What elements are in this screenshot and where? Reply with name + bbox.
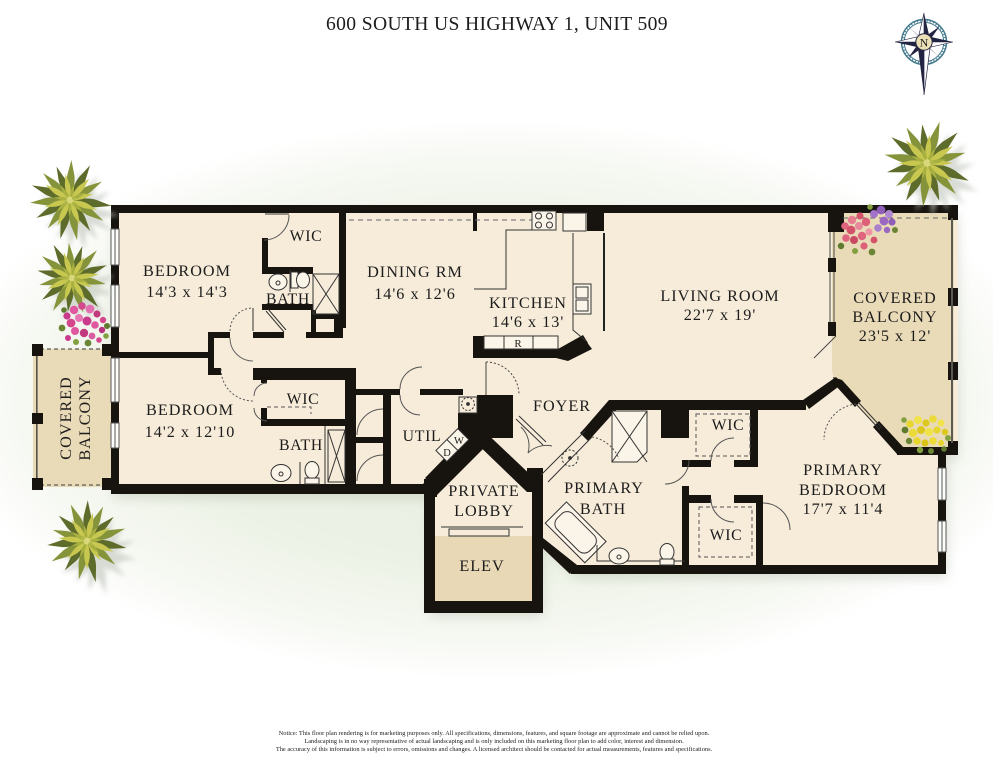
svg-text:22'7 x 19': 22'7 x 19' <box>684 306 757 324</box>
svg-text:PRIMARY: PRIMARY <box>564 479 644 497</box>
svg-text:D: D <box>443 448 451 459</box>
svg-text:DINING RM: DINING RM <box>367 263 463 281</box>
svg-text:R: R <box>514 338 522 350</box>
svg-text:BATH: BATH <box>580 500 626 518</box>
svg-text:LIVING ROOM: LIVING ROOM <box>660 287 779 305</box>
svg-text:COVERED: COVERED <box>853 289 936 307</box>
svg-text:W: W <box>454 436 464 447</box>
svg-text:COVERED: COVERED <box>57 376 75 459</box>
svg-text:PRIMARY: PRIMARY <box>803 461 883 479</box>
svg-text:LOBBY: LOBBY <box>454 502 514 520</box>
svg-text:The accuracy of this informati: The accuracy of this information is subj… <box>276 746 713 753</box>
svg-text:WIC: WIC <box>712 417 745 434</box>
svg-text:600 SOUTH US HIGHWAY 1, UNIT 5: 600 SOUTH US HIGHWAY 1, UNIT 509 <box>326 14 668 35</box>
svg-text:14'6 x 13': 14'6 x 13' <box>492 313 565 331</box>
svg-text:14'3 x 14'3: 14'3 x 14'3 <box>146 283 228 301</box>
svg-text:BALCONY: BALCONY <box>76 375 94 460</box>
svg-text:KITCHEN: KITCHEN <box>489 294 567 312</box>
svg-text:BATH: BATH <box>279 437 323 454</box>
svg-text:23'5 x 12': 23'5 x 12' <box>859 327 932 345</box>
svg-text:17'7 x 11'4: 17'7 x 11'4 <box>803 500 884 518</box>
svg-text:WIC: WIC <box>290 228 323 245</box>
svg-text:WIC: WIC <box>710 527 743 544</box>
svg-text:BEDROOM: BEDROOM <box>146 401 234 419</box>
svg-text:BEDROOM: BEDROOM <box>143 262 231 280</box>
svg-text:PRIVATE: PRIVATE <box>448 482 519 500</box>
svg-text:WIC: WIC <box>287 391 320 408</box>
svg-text:BEDROOM: BEDROOM <box>799 481 887 499</box>
svg-text:UTIL: UTIL <box>403 428 442 445</box>
svg-text:BALCONY: BALCONY <box>852 308 937 326</box>
svg-text:N: N <box>920 36 929 50</box>
svg-text:Notice: This floor plan rende: Notice: This floor plan rendering is for… <box>279 730 710 737</box>
svg-text:14'2 x 12'10: 14'2 x 12'10 <box>145 423 236 441</box>
svg-text:ELEV: ELEV <box>459 557 504 575</box>
svg-text:Landscaping is in no way repre: Landscaping is in no way representative … <box>304 738 684 745</box>
svg-text:FOYER: FOYER <box>533 397 591 415</box>
svg-text:14'6 x 12'6: 14'6 x 12'6 <box>374 285 456 303</box>
svg-text:BATH: BATH <box>266 291 310 308</box>
